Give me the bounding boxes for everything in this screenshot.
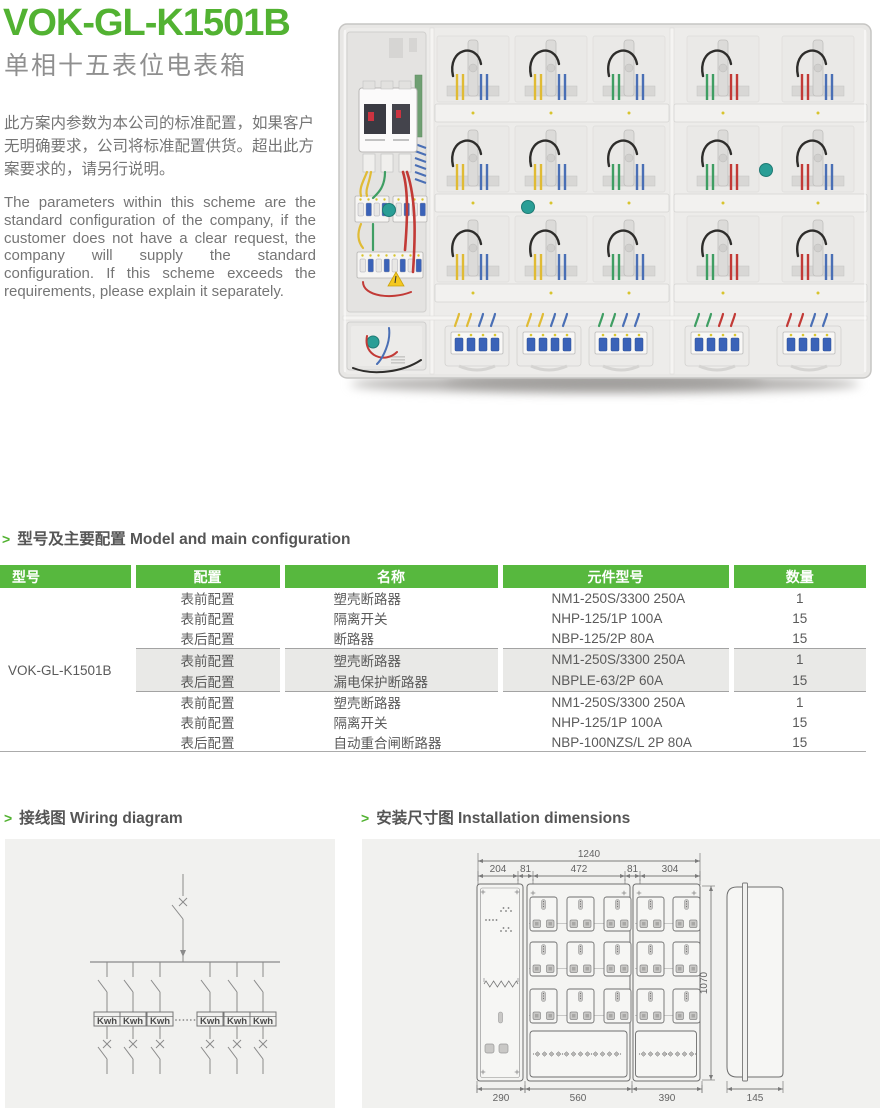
part-cell: NHP-125/1P 100A [500, 608, 731, 628]
meter-bay [593, 126, 665, 192]
dimension-label: 472 [571, 864, 588, 875]
section-title: 安装尺寸图 Installation dimensions [376, 810, 630, 827]
outgoing-breaker-group [685, 326, 749, 370]
meter-bay [687, 36, 759, 102]
dimension-label: 204 [490, 864, 507, 875]
meter-bay [515, 36, 587, 102]
dimension-label: 81 [520, 864, 532, 875]
config-table: 型号 配置 名称 元件型号 数量 VOK-GL-K1501B表前配置塑壳断路器N… [0, 565, 866, 752]
separator-dot [194, 1019, 196, 1021]
separator-dot [186, 1019, 188, 1021]
config-cell: 表前配置 [133, 588, 282, 608]
meter-branch: Kwh [197, 962, 223, 1074]
config-cell: 表前配置 [133, 608, 282, 628]
outgoing-breaker-group [589, 326, 653, 370]
section-title: 接线图 Wiring diagram [19, 810, 182, 827]
section-header-model-config: >型号及主要配置 Model and main configuration [2, 527, 350, 549]
section-title: 型号及主要配置 Model and main configuration [17, 531, 350, 548]
name-cell: 隔离开关 [282, 608, 500, 628]
seal-knob [522, 201, 535, 214]
wiring-diagram: KwhKwhKwhKwhKwhKwh [5, 839, 335, 1108]
meter-position-module [673, 989, 700, 1023]
cabinet-side-view [727, 887, 783, 1077]
meter-position-module [530, 989, 557, 1023]
meter-branch: Kwh [147, 962, 173, 1074]
dimension-label: 390 [659, 1093, 676, 1104]
meter-bay [437, 126, 509, 192]
meter-position-module [567, 989, 594, 1023]
meter-position-module [604, 942, 631, 976]
seal-knob [383, 204, 396, 217]
part-cell: NBPLE-63/2P 60A [500, 670, 731, 692]
config-cell: 表前配置 [133, 692, 282, 713]
description-english: The parameters within this scheme are th… [4, 194, 316, 301]
wiring-lines: KwhKwhKwhKwhKwhKwh [90, 874, 280, 1074]
qty-cell: 15 [731, 608, 866, 628]
qty-cell: 1 [731, 649, 866, 671]
product-photo [333, 20, 879, 440]
seal-knob [367, 336, 379, 348]
dimension-label: 81 [627, 864, 639, 875]
meter-position-module [530, 942, 557, 976]
qty-cell: 1 [731, 692, 866, 713]
meter-bay [593, 216, 665, 282]
separator-dot [179, 1019, 181, 1021]
kwh-meter-label: Kwh [227, 1016, 247, 1027]
part-cell: NBP-125/2P 80A [500, 628, 731, 649]
col-header-qty: 数量 [731, 565, 866, 588]
section-marker-icon: > [4, 810, 12, 826]
meter-bay [782, 126, 854, 192]
dimension-drawing: 124020481472813041070290560390145 [477, 849, 783, 1104]
name-cell: 塑壳断路器 [282, 649, 500, 671]
dimension-label: 290 [493, 1093, 510, 1104]
name-cell: 断路器 [282, 628, 500, 649]
installation-dimensions-drawing: 124020481472813041070290560390145 [362, 839, 880, 1108]
meter-branch: Kwh [224, 962, 250, 1074]
qty-cell: 15 [731, 670, 866, 692]
meter-position-module [530, 897, 557, 931]
section-marker-icon: > [361, 810, 369, 826]
config-cell: 表前配置 [133, 712, 282, 732]
config-cell: 表后配置 [133, 670, 282, 692]
part-cell: NM1-250S/3300 250A [500, 692, 731, 713]
meter-bay [593, 36, 665, 102]
name-cell: 漏电保护断路器 [282, 670, 500, 692]
meter-position-module [567, 942, 594, 976]
section-header-installation: >安装尺寸图 Installation dimensions [361, 806, 630, 828]
kwh-meter-label: Kwh [150, 1016, 170, 1027]
col-header-part: 元件型号 [500, 565, 731, 588]
product-subtitle: 单相十五表位电表箱 [4, 46, 247, 82]
meter-bay [782, 216, 854, 282]
meter-position-module [673, 942, 700, 976]
dimension-label: 304 [662, 864, 679, 875]
part-cell: NM1-250S/3300 250A [500, 649, 731, 671]
part-cell: NM1-250S/3300 250A [500, 588, 731, 608]
meter-bay [437, 36, 509, 102]
config-cell: 表前配置 [133, 649, 282, 671]
part-cell: NBP-100NZS/L 2P 80A [500, 732, 731, 752]
qty-cell: 15 [731, 732, 866, 752]
outgoing-breaker-group [517, 326, 581, 370]
wiring-diagram-panel: KwhKwhKwhKwhKwhKwh [5, 839, 335, 1108]
part-cell: NHP-125/1P 100A [500, 712, 731, 732]
meter-bay [687, 126, 759, 192]
product-model-title: VOK-GL-K1501B [3, 2, 290, 45]
model-cell: VOK-GL-K1501B [0, 588, 133, 752]
meter-bay [782, 36, 854, 102]
photo-root [339, 24, 871, 393]
meter-branch: Kwh [120, 962, 146, 1074]
meter-position-module [604, 897, 631, 931]
meter-bay [515, 216, 587, 282]
table-bottom-rule [0, 751, 866, 752]
config-table-body: VOK-GL-K1501B表前配置塑壳断路器NM1-250S/3300 250A… [0, 588, 866, 752]
col-header-name: 名称 [282, 565, 500, 588]
dimension-label: 145 [747, 1093, 764, 1104]
meter-position-module [637, 942, 664, 976]
col-header-config: 配置 [133, 565, 282, 588]
table-row: VOK-GL-K1501B表前配置塑壳断路器NM1-250S/3300 250A… [0, 588, 866, 608]
meter-bay [437, 216, 509, 282]
section-header-wiring: >接线图 Wiring diagram [4, 806, 183, 828]
kwh-meter-label: Kwh [123, 1016, 143, 1027]
name-cell: 自动重合闸断路器 [282, 732, 500, 752]
main-breaker [359, 81, 417, 172]
outgoing-breaker-group [777, 326, 841, 370]
separator-dot [183, 1019, 185, 1021]
section-marker-icon: > [2, 531, 10, 547]
table-header-row: 型号 配置 名称 元件型号 数量 [0, 565, 866, 588]
meter-position-module [637, 897, 664, 931]
meter-branch: Kwh [94, 962, 120, 1074]
config-cell: 表后配置 [133, 628, 282, 649]
col-header-model: 型号 [0, 565, 133, 588]
kwh-meter-label: Kwh [200, 1016, 220, 1027]
config-cell: 表后配置 [133, 732, 282, 752]
meter-branch: Kwh [250, 962, 276, 1074]
qty-cell: 15 [731, 628, 866, 649]
dimension-label: 560 [570, 1093, 587, 1104]
dimension-label: 1240 [578, 849, 601, 860]
kwh-meter-label: Kwh [97, 1016, 117, 1027]
meter-bay [687, 216, 759, 282]
meter-position-module [673, 897, 700, 931]
dimension-label: 1070 [699, 971, 710, 994]
name-cell: 塑壳断路器 [282, 588, 500, 608]
qty-cell: 15 [731, 712, 866, 732]
meter-position-module [567, 897, 594, 931]
kwh-meter-label: Kwh [253, 1016, 273, 1027]
meter-bay [515, 126, 587, 192]
meter-position-module [604, 989, 631, 1023]
separator-dot [190, 1019, 192, 1021]
installation-dimensions-panel: 124020481472813041070290560390145 [362, 839, 880, 1108]
seal-knob [760, 164, 773, 177]
page: VOK-GL-K1501B 单相十五表位电表箱 此方案内参数为本公司的标准配置，… [0, 0, 880, 1112]
description-chinese: 此方案内参数为本公司的标准配置，如果客户无明确要求，公司将标准配置供货。超出此方… [4, 112, 316, 181]
meter-position-module [637, 989, 664, 1023]
qty-cell: 1 [731, 588, 866, 608]
outgoing-breaker-group [445, 326, 509, 370]
name-cell: 塑壳断路器 [282, 692, 500, 713]
name-cell: 隔离开关 [282, 712, 500, 732]
separator-dot [175, 1019, 177, 1021]
